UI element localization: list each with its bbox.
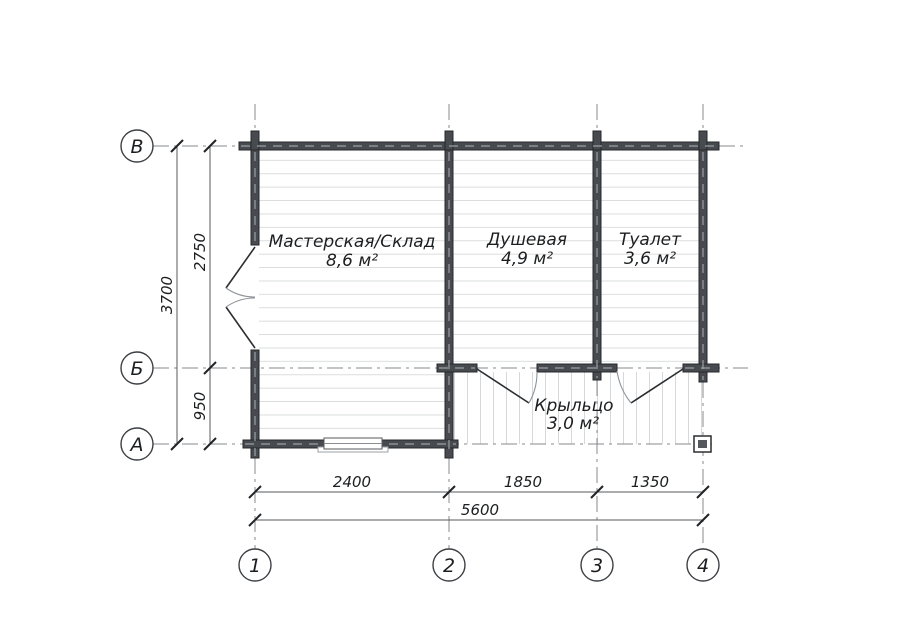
room-label-workshop: Мастерская/Склад bbox=[269, 232, 436, 252]
dim-label-h-segment-2: 1350 bbox=[631, 473, 669, 491]
room-area-porch: 3,0 м² bbox=[547, 414, 599, 434]
dim-label-v-segment-0: 2750 bbox=[191, 233, 209, 271]
floor-boards bbox=[259, 150, 712, 444]
grid-bubble-row-Bb-label: Б bbox=[130, 358, 143, 380]
room-label-shower: Душевая bbox=[486, 230, 567, 250]
dim-label-h-segment-1: 1850 bbox=[504, 473, 542, 491]
porch-post bbox=[694, 436, 711, 452]
dim-label-h-total: 5600 bbox=[461, 501, 499, 519]
room-area-toilet: 3,6 м² bbox=[624, 249, 676, 269]
room-area-workshop: 8,6 м² bbox=[326, 251, 378, 271]
grid-bubble-col-2-label: 2 bbox=[443, 555, 455, 577]
room-area-shower: 4,9 м² bbox=[501, 249, 553, 269]
floor-workshop bbox=[259, 150, 445, 440]
dim-label-v-segment-1: 950 bbox=[191, 392, 209, 421]
porch-post-core bbox=[698, 440, 707, 448]
grid-bubble-col-3-label: 3 bbox=[591, 555, 603, 577]
room-label-porch: Крыльцо bbox=[534, 396, 613, 416]
grid-bubble-row-B-label: В bbox=[130, 136, 143, 158]
double-door-swing-top bbox=[226, 288, 255, 297]
floor-plan-drawing: 2400 1850 1350 5600 2750 950 3700 Мастер… bbox=[0, 0, 910, 643]
wall-left-upper bbox=[251, 150, 259, 245]
grid-bubble-col-4-label: 4 bbox=[697, 555, 709, 577]
double-door-leaf-top bbox=[226, 247, 255, 288]
double-door-swing-bottom bbox=[226, 298, 255, 307]
room-label-toilet: Туалет bbox=[619, 230, 682, 250]
window bbox=[318, 438, 388, 452]
grid-bubble-col-1-label: 1 bbox=[249, 555, 261, 577]
floor-plan-page: 2400 1850 1350 5600 2750 950 3700 Мастер… bbox=[0, 0, 910, 643]
double-door-leaf-bottom bbox=[226, 307, 255, 348]
grid-bubble-row-A-label: А bbox=[129, 434, 144, 456]
dim-label-h-segment-0: 2400 bbox=[333, 473, 371, 491]
dim-label-v-total: 3700 bbox=[158, 276, 176, 314]
